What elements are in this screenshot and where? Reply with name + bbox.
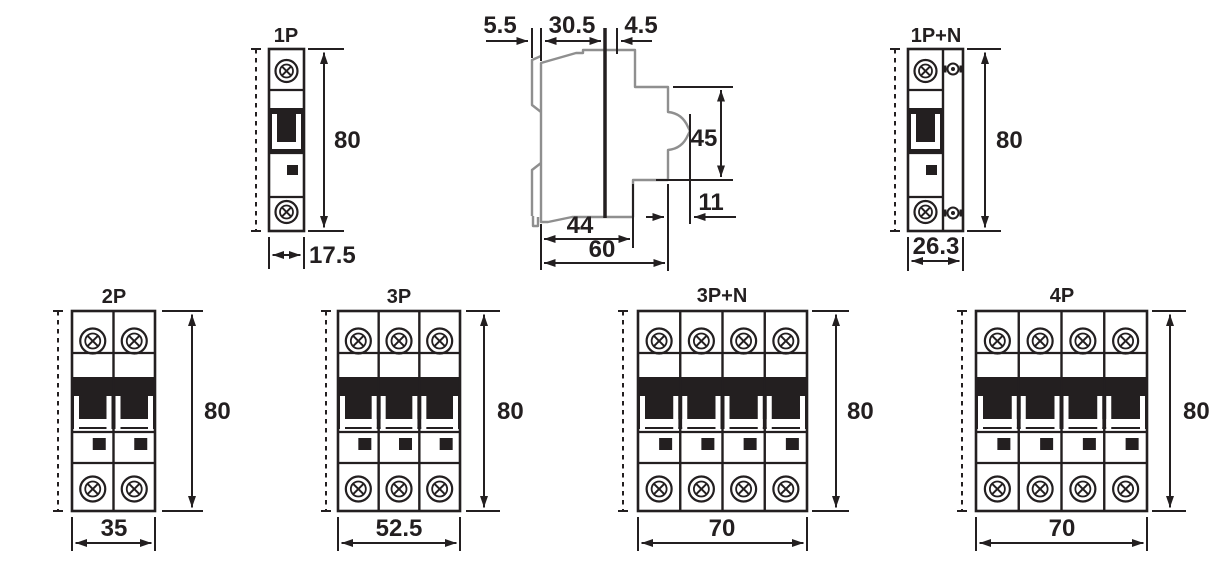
label-window — [1040, 438, 1053, 450]
side-view: 5.5 30.5 4.5 45 11 44 60 — [483, 12, 736, 271]
toggle-lever-bar — [1106, 419, 1145, 427]
dimension-height-1pn: 80 — [967, 49, 1023, 231]
mcb-dimension-diagram: 1P 80 17.5 5.5 — [0, 0, 1230, 564]
dim-label-5-5: 5.5 — [483, 12, 516, 39]
dimension-width-2p: 35 — [72, 515, 155, 551]
front-view-3p: 3P 80 52.5 — [321, 286, 524, 551]
front-view-1p: 1P 80 17.5 — [251, 25, 361, 269]
dim-label-80: 80 — [1183, 398, 1210, 425]
dimension-width-1pn: 26.3 — [908, 233, 963, 271]
dimension-height-4p: 80 — [1152, 311, 1210, 511]
dimension-width-1p: 17.5 — [269, 237, 356, 269]
breaker-body-2p — [53, 311, 155, 511]
toggle-lever-bar — [640, 419, 678, 427]
dim-label-26-3: 26.3 — [913, 233, 960, 260]
dimension-height-2p: 80 — [162, 311, 231, 511]
view-title-1pn: 1P+N — [911, 25, 962, 47]
dim-label-4-5: 4.5 — [624, 12, 657, 39]
breaker-body-3pn — [618, 311, 807, 511]
label-window — [358, 438, 371, 450]
toggle-lever-bar — [1021, 419, 1060, 427]
neutral-terminal-mark — [943, 210, 947, 217]
toggle-lever-bar — [725, 419, 763, 427]
label-window — [134, 438, 147, 450]
neutral-screw-dot — [951, 211, 955, 215]
dim-label-44: 44 — [567, 212, 594, 239]
view-title-1p: 1P — [274, 25, 298, 47]
front-view-2p: 2P 80 35 — [53, 286, 231, 551]
dimension-width-4p: 70 — [976, 515, 1147, 551]
label-window — [287, 165, 298, 175]
view-title-3pn: 3P+N — [697, 285, 748, 307]
dim-label-17-5: 17.5 — [309, 242, 356, 269]
toggle-lever-bar — [116, 419, 154, 427]
label-window — [93, 438, 106, 450]
toggle-lever-bar — [74, 419, 112, 427]
view-title-2p: 2P — [102, 286, 126, 308]
toggle-lever-bar — [421, 419, 458, 427]
dim-label-80: 80 — [204, 398, 231, 425]
dimension-height-3p: 80 — [466, 311, 524, 511]
view-title-4p: 4P — [1050, 285, 1074, 307]
front-view-4p: 4P 80 70 — [957, 285, 1210, 551]
dimension-height-1p: 80 — [308, 49, 361, 231]
din-clip-top — [532, 56, 541, 112]
label-window — [744, 438, 757, 450]
dim-label-70: 70 — [1049, 515, 1076, 542]
dim-label-80: 80 — [996, 127, 1023, 154]
toggle-lever-bar — [911, 142, 940, 149]
breaker-body-4p — [957, 311, 1147, 511]
toggle-lever-bar — [978, 419, 1017, 427]
dim-label-45: 45 — [691, 125, 718, 152]
front-view-1pn: 1P+N 80 26.3 — [890, 25, 1023, 271]
dimension-width-3pn: 70 — [638, 515, 807, 551]
dimension-height-3pn: 80 — [812, 311, 874, 511]
din-clip-bottom — [532, 163, 541, 226]
toggle-lever-bar — [682, 419, 720, 427]
toggle-lever-bar — [340, 419, 377, 427]
dim-label-35: 35 — [101, 515, 128, 542]
label-window — [1126, 438, 1139, 450]
label-window — [659, 438, 672, 450]
neutral-terminal-mark — [943, 66, 947, 73]
dim-label-11: 11 — [698, 189, 723, 216]
toggle-lever-bar — [272, 142, 301, 149]
label-window — [701, 438, 714, 450]
breaker-body-3p — [321, 311, 460, 511]
dimension-width-3p: 52.5 — [338, 515, 460, 551]
dim-label-60: 60 — [589, 236, 616, 263]
diagram-canvas: 1P 80 17.5 5.5 — [0, 0, 1230, 564]
label-window — [440, 438, 453, 450]
toggle-lever-bar — [381, 419, 418, 427]
label-window — [997, 438, 1010, 450]
neutral-screw-dot — [951, 67, 955, 71]
front-view-3pn: 3P+N 80 70 — [618, 285, 874, 551]
dim-label-80: 80 — [847, 398, 874, 425]
dim-label-80: 80 — [334, 127, 361, 154]
view-title-3p: 3P — [387, 286, 411, 308]
toggle-lever-bar — [1064, 419, 1103, 427]
dim-label-52-5: 52.5 — [376, 515, 423, 542]
label-window — [926, 165, 937, 175]
label-window — [399, 438, 412, 450]
label-window — [1083, 438, 1096, 450]
toggle-lever-bar — [767, 419, 805, 427]
breaker-body-1p — [251, 49, 304, 231]
label-window — [786, 438, 799, 450]
dim-label-70: 70 — [709, 515, 736, 542]
dim-label-30-5: 30.5 — [549, 12, 596, 39]
breaker-body-1pn — [890, 49, 963, 231]
dim-label-80: 80 — [497, 398, 524, 425]
